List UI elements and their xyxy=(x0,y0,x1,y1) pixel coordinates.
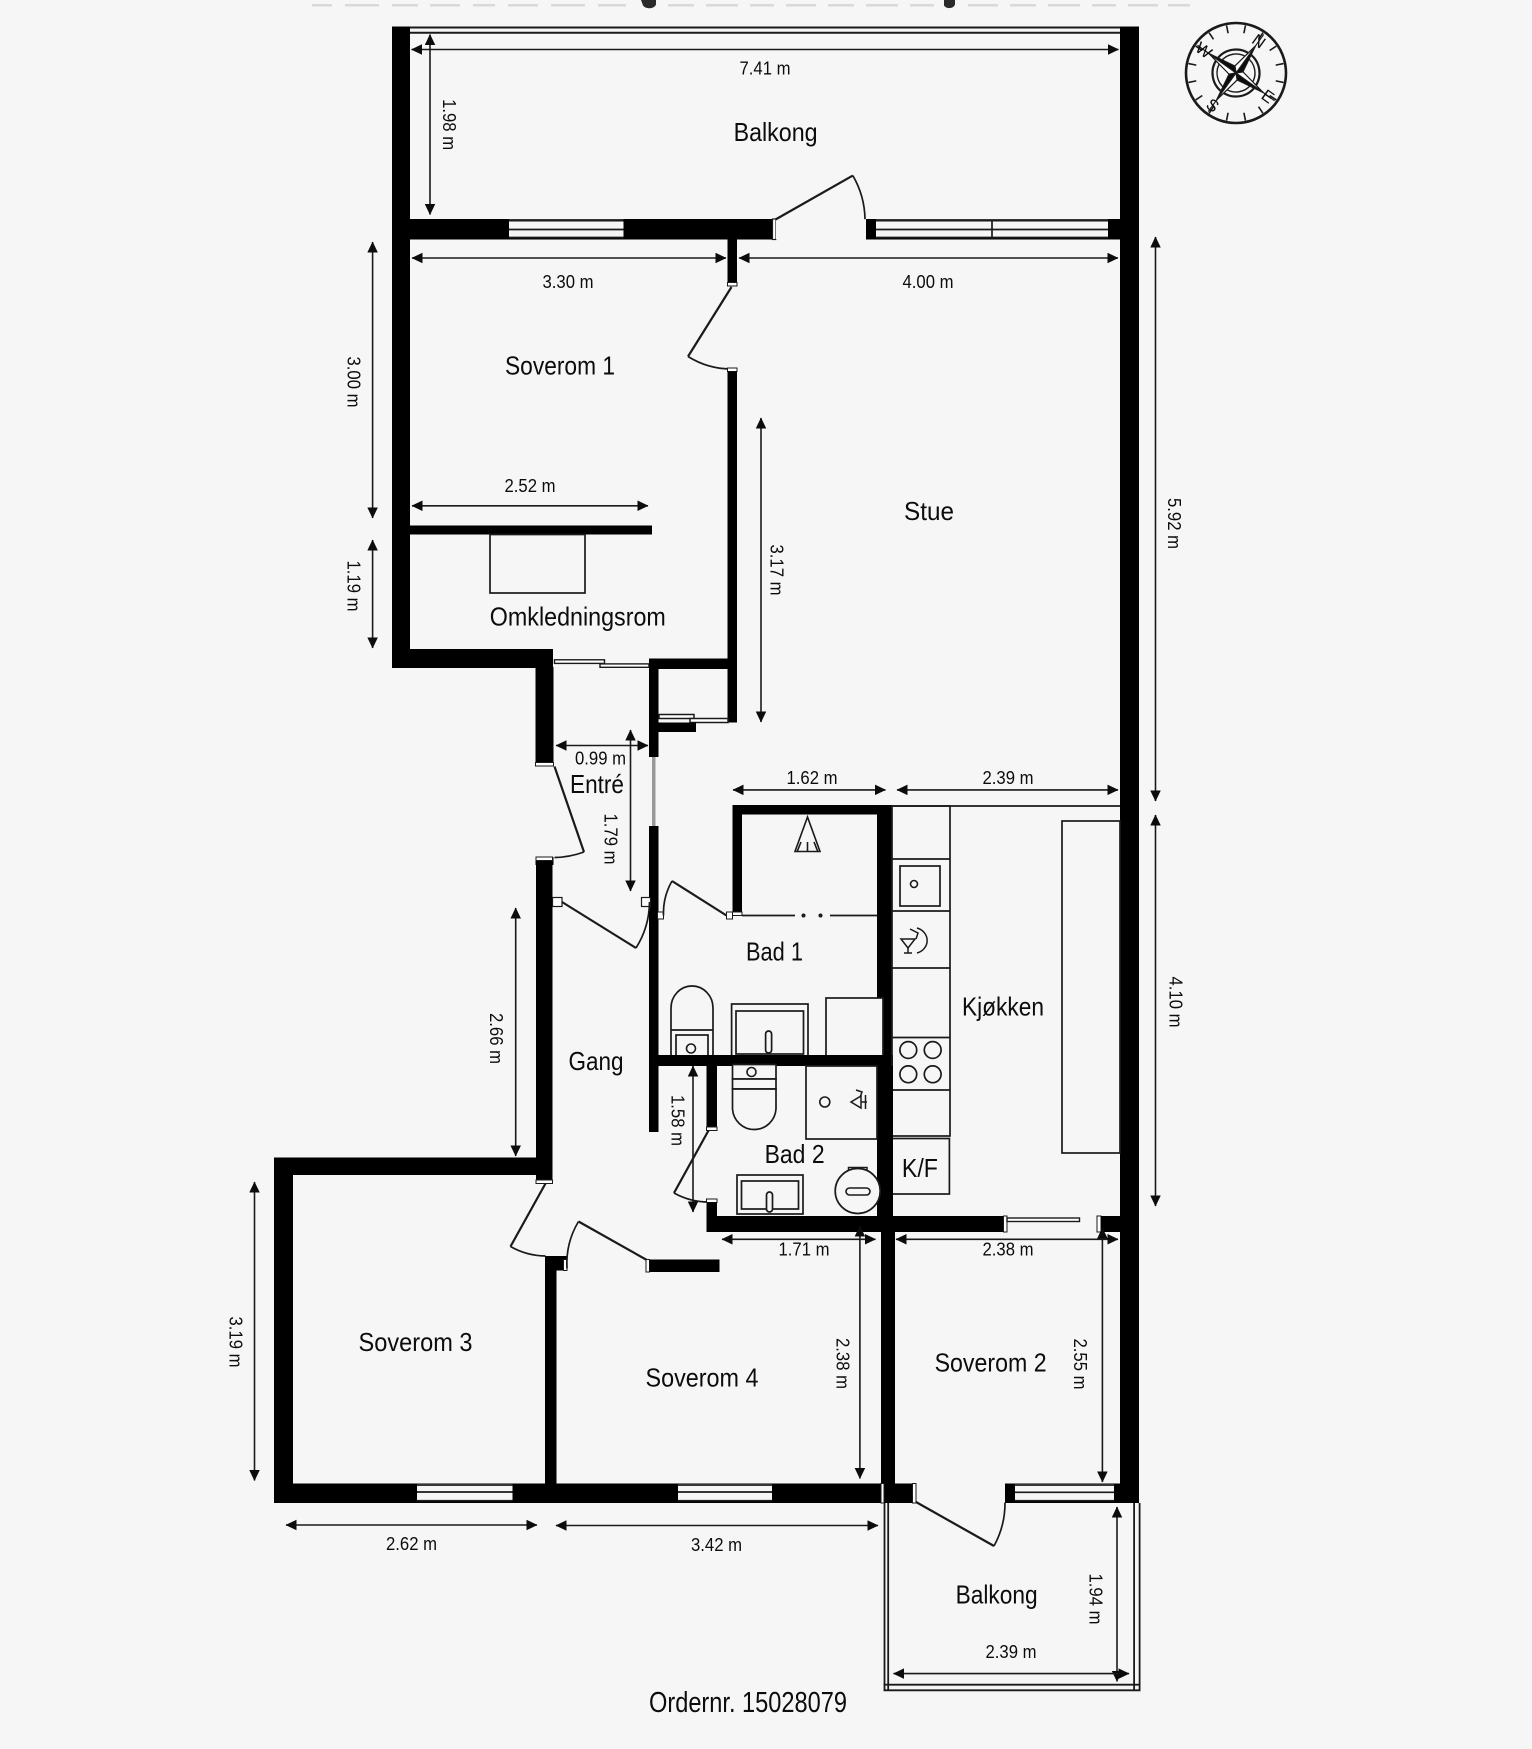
svg-text:0.99 m: 0.99 m xyxy=(575,749,626,769)
svg-text:Soverom 4: Soverom 4 xyxy=(646,1363,759,1393)
svg-text:3.17 m: 3.17 m xyxy=(767,545,787,596)
svg-text:2.39 m: 2.39 m xyxy=(983,768,1034,788)
svg-text:2.62 m: 2.62 m xyxy=(386,1534,437,1554)
svg-text:Balkong: Balkong xyxy=(734,117,818,147)
svg-text:Ordernr. 15028079: Ordernr. 15028079 xyxy=(649,1687,847,1719)
svg-text:3.42 m: 3.42 m xyxy=(691,1535,742,1555)
svg-text:2.39 m: 2.39 m xyxy=(986,1642,1037,1662)
svg-text:Soverom 1: Soverom 1 xyxy=(505,350,615,380)
svg-text:Omkledningsrom: Omkledningsrom xyxy=(490,602,666,632)
svg-text:Stue: Stue xyxy=(904,496,954,526)
svg-text:5.92 m: 5.92 m xyxy=(1164,498,1184,549)
svg-text:1.79 m: 1.79 m xyxy=(601,814,621,865)
svg-text:K/F: K/F xyxy=(902,1153,938,1183)
svg-text:4.10 m: 4.10 m xyxy=(1166,977,1186,1028)
svg-text:1.19 m: 1.19 m xyxy=(344,561,364,612)
svg-text:3.00 m: 3.00 m xyxy=(344,357,364,408)
svg-text:Bad 1: Bad 1 xyxy=(746,937,803,967)
svg-text:Bad 2: Bad 2 xyxy=(765,1139,825,1169)
svg-text:Soverom 2: Soverom 2 xyxy=(935,1348,1047,1378)
svg-text:Soverom 3: Soverom 3 xyxy=(359,1327,473,1357)
svg-text:2.38 m: 2.38 m xyxy=(983,1240,1034,1260)
svg-text:Kjøkken: Kjøkken xyxy=(962,992,1044,1022)
svg-text:Entré: Entré xyxy=(570,769,624,799)
svg-text:1.58 m: 1.58 m xyxy=(668,1095,688,1146)
svg-text:Balkong: Balkong xyxy=(956,1580,1038,1610)
svg-text:2.55 m: 2.55 m xyxy=(1070,1339,1090,1390)
svg-text:Gang: Gang xyxy=(569,1046,624,1076)
svg-text:2.52 m: 2.52 m xyxy=(505,476,556,496)
svg-text:7.41 m: 7.41 m xyxy=(740,59,791,79)
svg-text:3.30 m: 3.30 m xyxy=(543,272,594,292)
svg-text:1.94 m: 1.94 m xyxy=(1086,1574,1106,1625)
svg-text:1.71 m: 1.71 m xyxy=(779,1240,830,1260)
svg-text:2.66 m: 2.66 m xyxy=(486,1013,506,1064)
svg-text:3.19 m: 3.19 m xyxy=(226,1317,246,1368)
svg-text:2.38 m: 2.38 m xyxy=(833,1338,853,1389)
svg-text:1.62 m: 1.62 m xyxy=(787,768,838,788)
svg-text:1.98 m: 1.98 m xyxy=(439,99,459,150)
svg-text:4.00 m: 4.00 m xyxy=(903,272,954,292)
